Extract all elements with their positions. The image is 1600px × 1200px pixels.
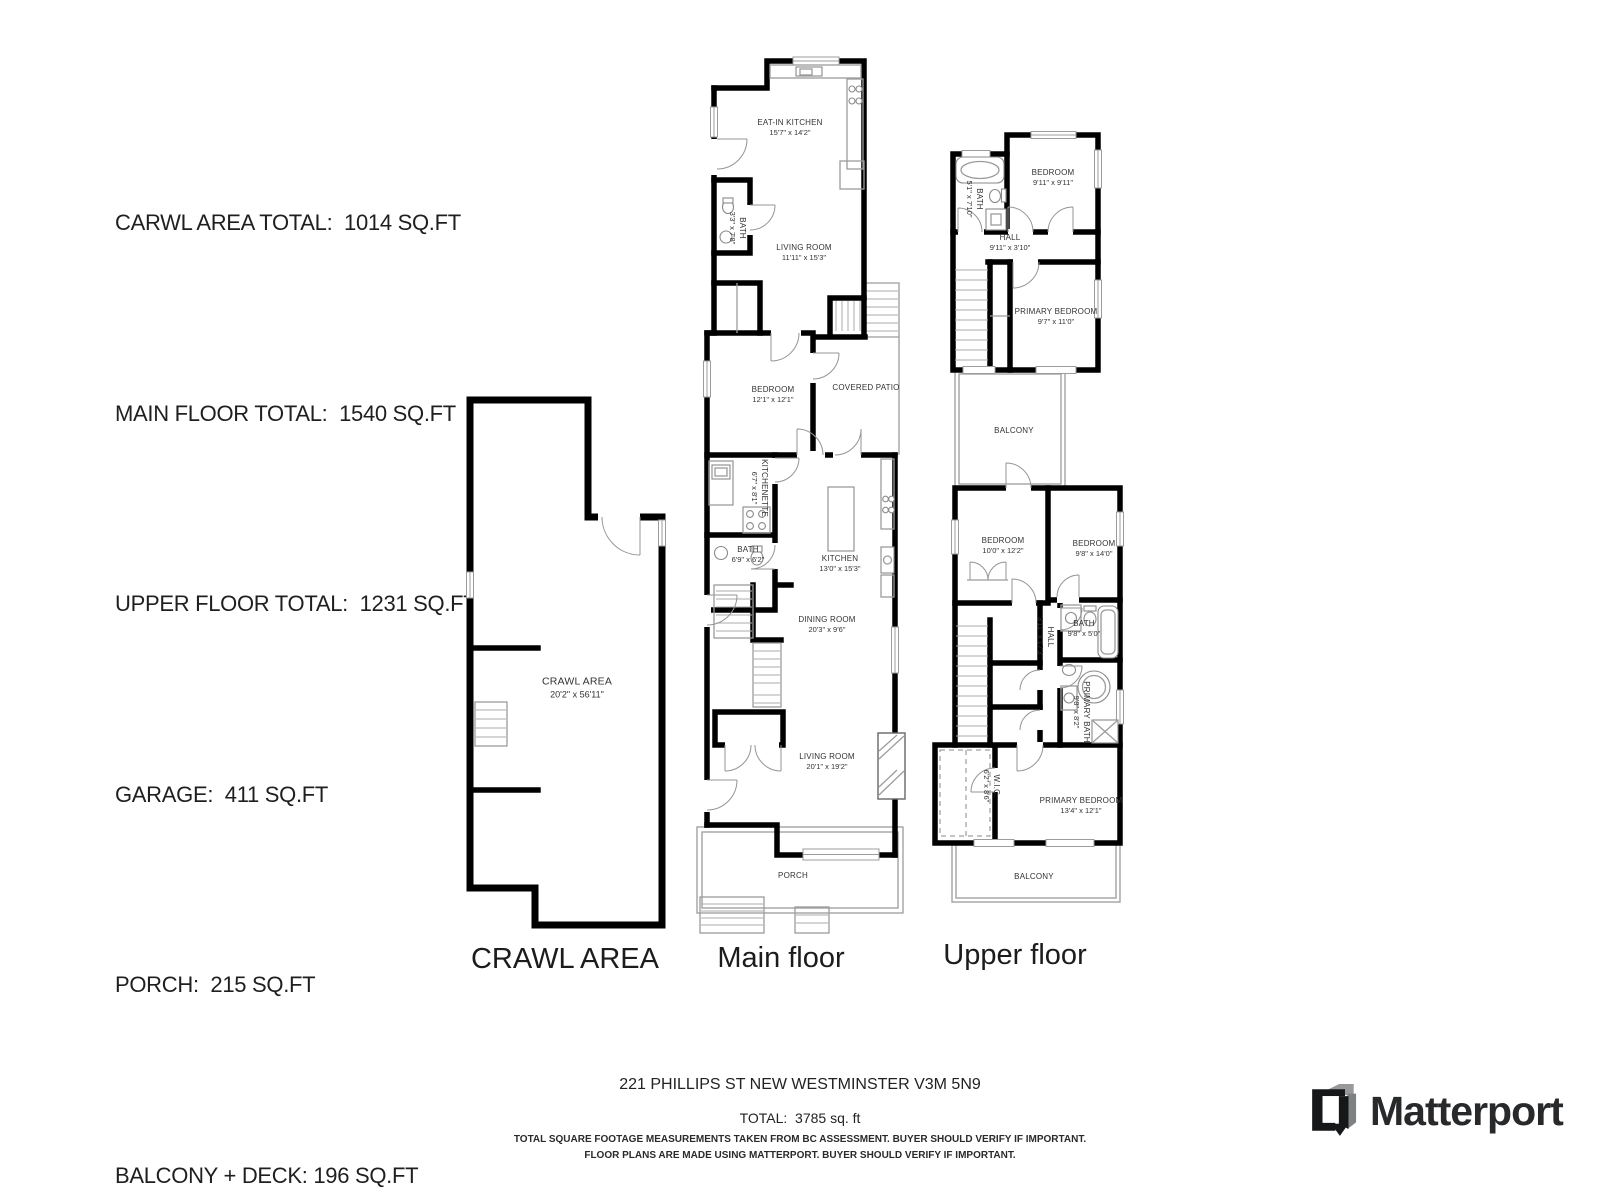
area-stats: CARWL AREA TOTAL: 1014 SQ.FT MAIN FLOOR … — [115, 64, 476, 1200]
room-label-main-living-room-upper: LIVING ROOM 11'11" x 15'3" — [776, 243, 832, 263]
crawl-area-plan — [455, 392, 670, 932]
title-upper-floor: Upper floor — [943, 939, 1086, 972]
room-label-upper-balcony-bottom: BALCONY — [1014, 872, 1054, 882]
title-main-floor: Main floor — [717, 942, 844, 975]
stat-porch: PORCH: 215 SQ.FT — [115, 953, 476, 1017]
main-floor-plan — [695, 55, 910, 935]
matterport-logo: Matterport — [1312, 1084, 1563, 1138]
room-label-porch: PORCH — [778, 871, 808, 881]
room-label-covered-patio: COVERED PATIO — [832, 383, 899, 393]
room-label-main-bedroom: BEDROOM 12'1" x 12'1" — [752, 385, 795, 405]
room-label-upper-primary-bedroom-lower: PRIMARY BEDROOM 13'4" x 12'1" — [1040, 796, 1123, 816]
room-label-upper-primary-bedroom-top: PRIMARY BEDROOM 9'7" x 11'0" — [1015, 307, 1098, 327]
stat-crawl-total: CARWL AREA TOTAL: 1014 SQ.FT — [115, 191, 476, 255]
room-label-upper-bedroom-2: BEDROOM 10'0" x 12'2" — [982, 536, 1025, 556]
room-label-wic: W.I.C. 6'2" x 8'6" — [981, 770, 1001, 803]
room-label-upper-bath-top: BATH 5'1" x 7'10" — [964, 181, 984, 218]
room-label-dining-room: DINING ROOM 20'3" x 9'6" — [798, 615, 855, 635]
room-label-eat-in-kitchen: EAT-IN KITCHEN 15'7" x 14'2" — [757, 118, 822, 138]
room-label-crawl-area: CRAWL AREA 20'2" x 56'11" — [542, 675, 612, 700]
room-label-main-bath-lower: BATH 6'9" x 6'2" — [732, 545, 765, 565]
room-label-upper-hall-lower: HALL 3'11" x 17'3" — [1035, 617, 1055, 658]
room-label-main-bath-upper: BATH 3'3" x 7'8" — [727, 212, 747, 245]
stat-main-total: MAIN FLOOR TOTAL: 1540 SQ.FT — [115, 382, 476, 446]
room-label-primary-bath: PRIMARY BATH 9'8" x 8'2" — [1071, 681, 1091, 743]
disclaimer-line-2: FLOOR PLANS ARE MADE USING MATTERPORT. B… — [0, 1150, 1600, 1161]
room-label-upper-balcony-top: BALCONY — [994, 426, 1034, 436]
floorplan-sheet: CARWL AREA TOTAL: 1014 SQ.FT MAIN FLOOR … — [0, 0, 1600, 1200]
matterport-m-icon — [1312, 1084, 1358, 1138]
room-label-kitchenette: KITCHENETTE 6'7" x 8'1" — [749, 459, 769, 517]
title-crawl-area: CRAWL AREA — [471, 943, 659, 976]
stat-garage: GARAGE: 411 SQ.FT — [115, 763, 476, 827]
room-label-main-living-room-lower: LIVING ROOM 20'1" x 19'2" — [799, 752, 855, 772]
stat-upper-total: UPPER FLOOR TOTAL: 1231 SQ.FT — [115, 572, 476, 636]
matterport-wordmark: Matterport — [1370, 1088, 1563, 1135]
room-label-kitchen: KITCHEN 13'0" x 15'3" — [819, 554, 860, 574]
room-label-upper-bedroom-1: BEDROOM 9'11" x 9'11" — [1032, 168, 1075, 188]
room-label-upper-hall-top: HALL 9'11" x 3'10" — [990, 233, 1031, 253]
room-label-upper-bedroom-3: BEDROOM 9'8" x 14'0" — [1073, 539, 1116, 559]
room-label-upper-bath-mid: BATH 9'8" x 5'0" — [1068, 619, 1101, 639]
